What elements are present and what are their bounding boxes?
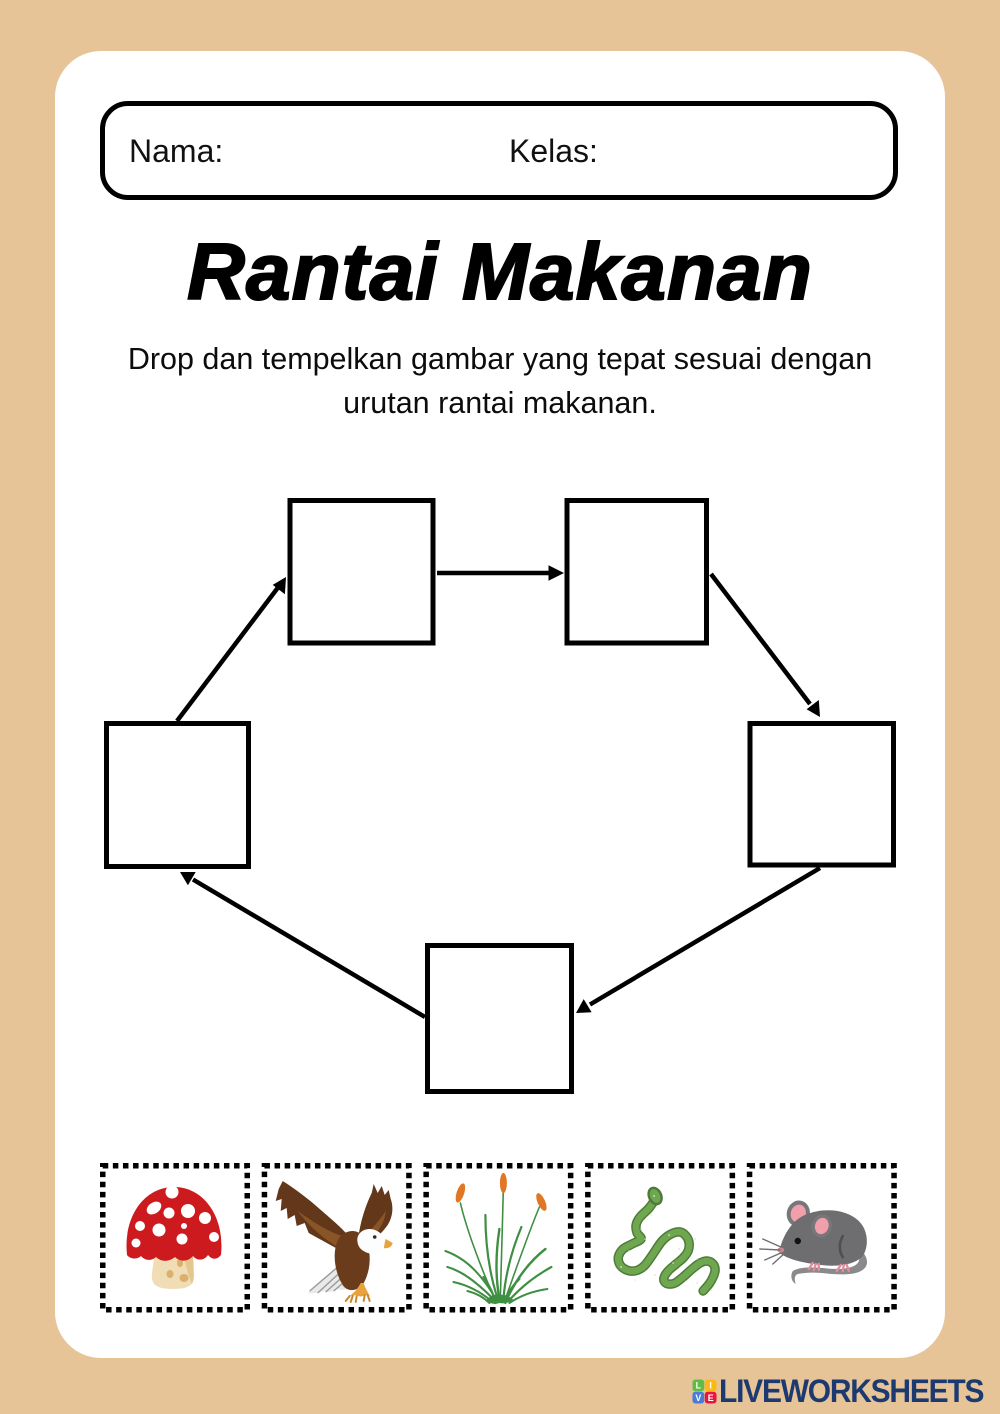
svg-text:I: I	[709, 1380, 711, 1390]
svg-text:L: L	[696, 1380, 702, 1390]
svg-text:E: E	[708, 1392, 714, 1402]
svg-text:V: V	[695, 1392, 701, 1402]
